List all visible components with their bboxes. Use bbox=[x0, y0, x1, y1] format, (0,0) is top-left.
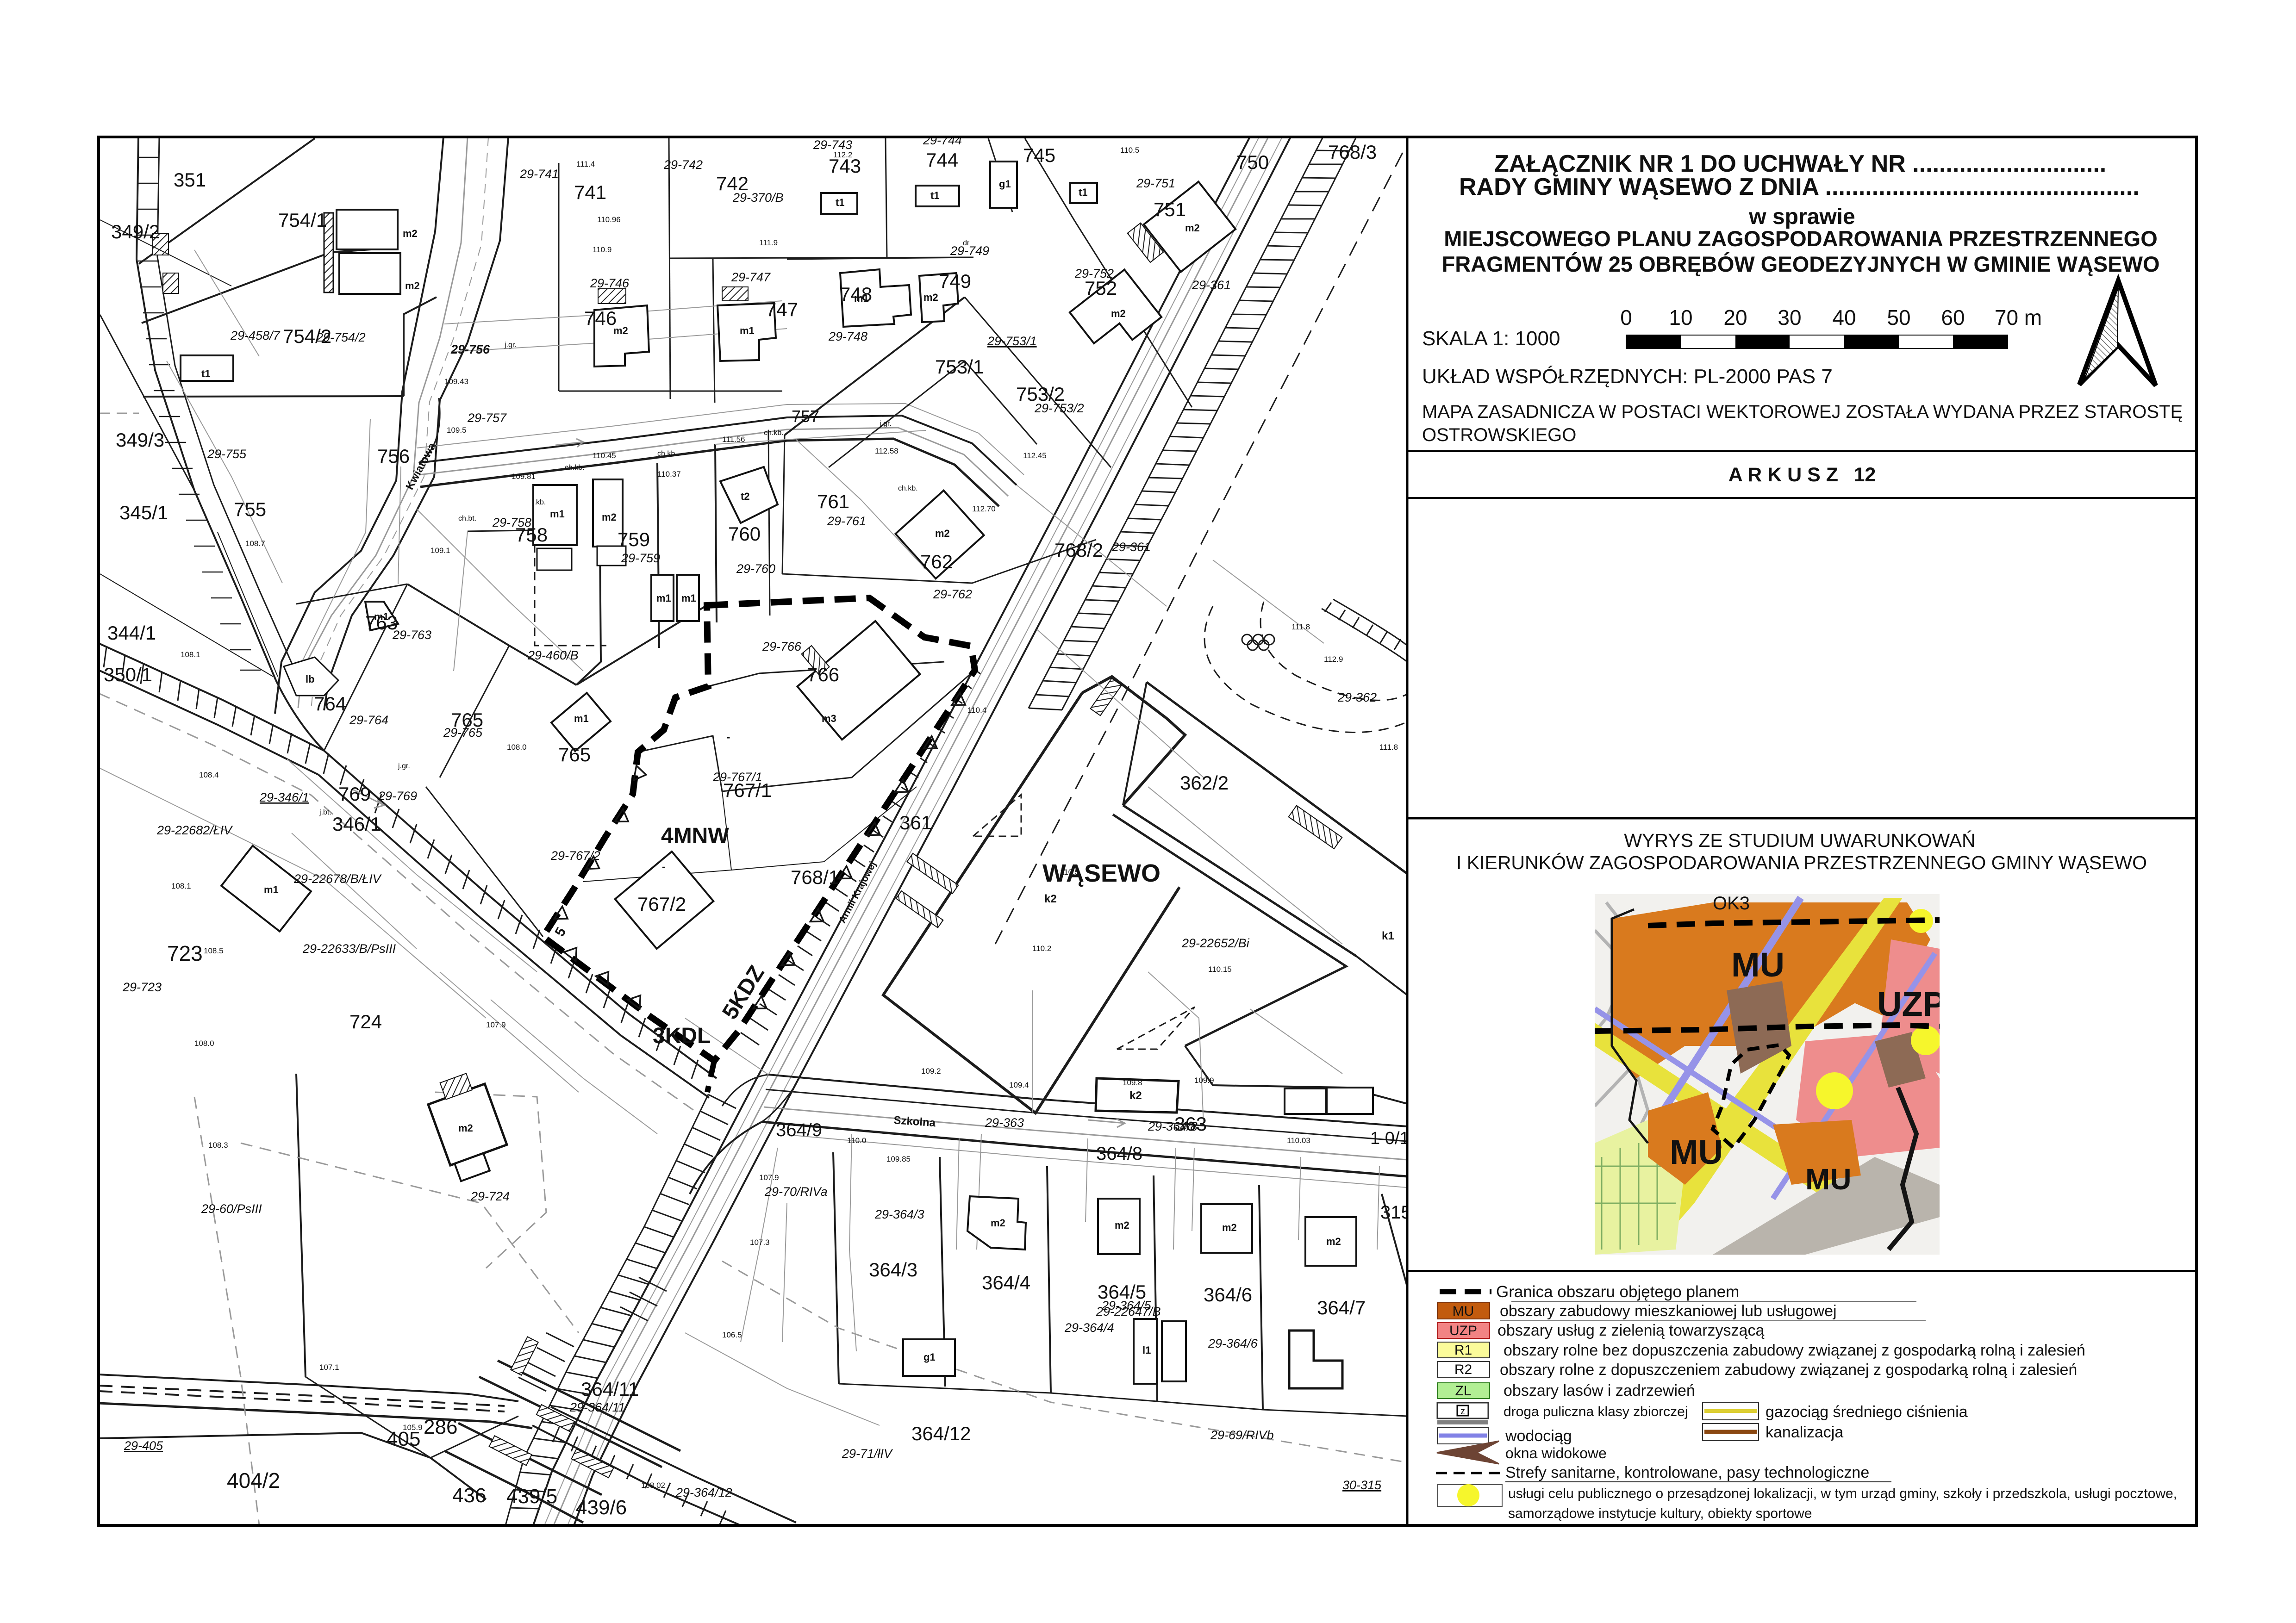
svg-text:747: 747 bbox=[766, 298, 798, 320]
svg-text:m1: m1 bbox=[740, 325, 755, 336]
svg-text:107.3: 107.3 bbox=[750, 1238, 770, 1247]
svg-text:346/1: 346/1 bbox=[332, 813, 381, 835]
svg-text:ch.kb.: ch.kb. bbox=[657, 450, 677, 458]
svg-text:762: 762 bbox=[920, 551, 953, 572]
svg-text:767/2: 767/2 bbox=[637, 893, 686, 915]
svg-text:364/6: 364/6 bbox=[1204, 1284, 1252, 1306]
svg-text:29-761: 29-761 bbox=[827, 514, 866, 528]
svg-text:759: 759 bbox=[618, 529, 650, 550]
svg-text:m2: m2 bbox=[991, 1217, 1005, 1229]
svg-text:757: 757 bbox=[792, 407, 819, 426]
svg-text:usługi celu publicznego o prze: usługi celu publicznego o przesądzonej l… bbox=[1508, 1486, 2177, 1501]
svg-text:ZL: ZL bbox=[1455, 1383, 1471, 1399]
svg-text:29-767/2: 29-767/2 bbox=[550, 849, 600, 863]
svg-text:723: 723 bbox=[167, 941, 203, 965]
svg-text:29-759: 29-759 bbox=[621, 551, 660, 565]
svg-text:109.81: 109.81 bbox=[512, 472, 536, 481]
svg-text:110.96: 110.96 bbox=[597, 215, 621, 224]
svg-text:769: 769 bbox=[338, 783, 371, 805]
svg-text:29-749: 29-749 bbox=[950, 244, 989, 258]
svg-text:29-361: 29-361 bbox=[1111, 540, 1151, 554]
svg-text:29-69/RIVb: 29-69/RIVb bbox=[1210, 1428, 1274, 1442]
svg-text:OSTROWSKIEGO: OSTROWSKIEGO bbox=[1422, 425, 1576, 445]
svg-text:29-361: 29-361 bbox=[1192, 278, 1231, 292]
svg-text:111.9: 111.9 bbox=[759, 238, 778, 247]
svg-text:109.9: 109.9 bbox=[1194, 1076, 1214, 1085]
svg-text:751: 751 bbox=[1154, 199, 1186, 220]
svg-text:111.56: 111.56 bbox=[722, 435, 745, 444]
svg-text:768/1: 768/1 bbox=[791, 866, 839, 888]
svg-text:108.02: 108.02 bbox=[641, 1481, 665, 1490]
svg-text:3KDL: 3KDL bbox=[653, 1024, 711, 1048]
svg-text:okna widokowe: okna widokowe bbox=[1505, 1445, 1607, 1461]
svg-text:m2: m2 bbox=[1111, 308, 1126, 319]
svg-text:g1: g1 bbox=[923, 1351, 936, 1363]
svg-text:29-362: 29-362 bbox=[1337, 690, 1377, 704]
svg-text:70 m: 70 m bbox=[1995, 305, 2042, 330]
svg-text:UZP: UZP bbox=[1449, 1323, 1477, 1338]
svg-text:109.1: 109.1 bbox=[430, 546, 450, 555]
svg-text:29-751: 29-751 bbox=[1136, 176, 1175, 190]
svg-text:29-765: 29-765 bbox=[443, 726, 483, 740]
svg-text:I KIERUNKÓW ZAGOSPODAROWANIA P: I KIERUNKÓW ZAGOSPODAROWANIA PRZESTRZENN… bbox=[1456, 852, 2147, 873]
svg-text:349/2: 349/2 bbox=[111, 221, 160, 243]
svg-text:0: 0 bbox=[1620, 305, 1632, 330]
svg-text:112.70: 112.70 bbox=[972, 504, 996, 513]
svg-text:m1: m1 bbox=[550, 508, 565, 520]
svg-text:752: 752 bbox=[1085, 277, 1117, 299]
svg-text:110.37: 110.37 bbox=[657, 470, 681, 479]
svg-text:29-743: 29-743 bbox=[813, 138, 852, 152]
svg-text:OK3: OK3 bbox=[1713, 893, 1750, 914]
svg-text:766: 766 bbox=[807, 664, 839, 685]
svg-text:108.4: 108.4 bbox=[199, 771, 219, 779]
svg-text:108.5: 108.5 bbox=[204, 946, 224, 955]
svg-text:k2: k2 bbox=[1129, 1089, 1142, 1102]
svg-text:m2: m2 bbox=[923, 292, 938, 303]
svg-text:wodociąg: wodociąg bbox=[1505, 1427, 1572, 1445]
svg-text:29-757: 29-757 bbox=[467, 411, 507, 425]
svg-text:29-763: 29-763 bbox=[392, 628, 431, 642]
svg-text:obszary usług z zielenią towar: obszary usług z zielenią towarzyszącą bbox=[1497, 1322, 1764, 1339]
svg-text:A R K U S Z 12: A R K U S Z 12 bbox=[1728, 464, 1876, 486]
svg-text:m1: m1 bbox=[574, 713, 589, 724]
svg-text:m3: m3 bbox=[822, 713, 836, 724]
svg-text:110.5: 110.5 bbox=[1060, 868, 1079, 877]
svg-text:109.4: 109.4 bbox=[1009, 1081, 1029, 1089]
svg-text:MU: MU bbox=[1731, 945, 1784, 984]
svg-text:k1: k1 bbox=[1382, 930, 1394, 942]
svg-text:50: 50 bbox=[1887, 305, 1910, 330]
svg-text:w sprawie: w sprawie bbox=[1748, 205, 1855, 229]
svg-text:29-760: 29-760 bbox=[736, 562, 775, 576]
svg-text:m2: m2 bbox=[403, 228, 418, 239]
svg-text:112.45: 112.45 bbox=[1023, 451, 1047, 460]
svg-text:30-315: 30-315 bbox=[1342, 1478, 1382, 1492]
svg-text:UKŁAD WSPÓŁRZĘDNYCH: PL-2000 P: UKŁAD WSPÓŁRZĘDNYCH: PL-2000 PAS 7 bbox=[1422, 365, 1833, 388]
svg-text:j.kb.: j.kb. bbox=[532, 498, 546, 506]
svg-text:l1: l1 bbox=[1142, 1344, 1151, 1356]
svg-text:286: 286 bbox=[424, 1416, 457, 1438]
svg-text:29-724: 29-724 bbox=[470, 1189, 510, 1203]
svg-text:t1: t1 bbox=[930, 190, 940, 201]
svg-text:29-764: 29-764 bbox=[349, 713, 388, 727]
svg-text:j.gr.: j.gr. bbox=[879, 420, 892, 428]
svg-text:744: 744 bbox=[926, 149, 958, 171]
svg-text:109.5: 109.5 bbox=[447, 426, 467, 435]
svg-text:m2: m2 bbox=[1185, 222, 1200, 234]
svg-text:ch.kb.: ch.kb. bbox=[565, 464, 585, 472]
svg-text:m2: m2 bbox=[458, 1122, 473, 1134]
svg-text:ch.kb.: ch.kb. bbox=[898, 485, 918, 492]
svg-text:764: 764 bbox=[314, 693, 346, 715]
svg-text:351: 351 bbox=[174, 169, 206, 191]
svg-text:m1: m1 bbox=[681, 592, 696, 604]
svg-text:-: - bbox=[727, 731, 730, 743]
svg-text:obszary rolne z dopuszczeniem: obszary rolne z dopuszczeniem zabudowy z… bbox=[1500, 1361, 2077, 1379]
svg-text:364/8: 364/8 bbox=[1096, 1144, 1142, 1164]
svg-text:29-60/PsIII: 29-60/PsIII bbox=[201, 1202, 262, 1216]
svg-text:-: - bbox=[662, 861, 665, 872]
svg-text:29-756: 29-756 bbox=[450, 342, 490, 356]
svg-text:j.bt.: j.bt. bbox=[319, 808, 331, 816]
svg-text:110.5: 110.5 bbox=[1120, 146, 1139, 155]
svg-text:MIEJSCOWEGO PLANU ZAGOSPODAROW: MIEJSCOWEGO PLANU ZAGOSPODAROWANIA PRZES… bbox=[1444, 226, 2158, 251]
svg-text:29-753/1: 29-753/1 bbox=[987, 334, 1037, 348]
svg-text:768/2: 768/2 bbox=[1054, 539, 1103, 561]
svg-text:t2: t2 bbox=[741, 491, 750, 502]
svg-text:ch.kb.: ch.kb. bbox=[764, 429, 784, 437]
svg-text:111.4: 111.4 bbox=[576, 160, 595, 168]
svg-text:109.2: 109.2 bbox=[921, 1067, 941, 1076]
svg-text:20: 20 bbox=[1723, 305, 1747, 330]
svg-text:404/2: 404/2 bbox=[227, 1468, 280, 1492]
svg-text:dr: dr bbox=[963, 239, 970, 247]
svg-text:364/4: 364/4 bbox=[982, 1272, 1030, 1293]
svg-text:768/3: 768/3 bbox=[1328, 141, 1377, 163]
svg-text:29-22682/ŁIV: 29-22682/ŁIV bbox=[156, 823, 233, 837]
svg-text:112.58: 112.58 bbox=[875, 447, 898, 455]
svg-text:10: 10 bbox=[1669, 305, 1692, 330]
svg-text:29-70/RIVa: 29-70/RIVa bbox=[764, 1185, 828, 1199]
svg-text:108.3: 108.3 bbox=[208, 1141, 228, 1150]
svg-text:112.2: 112.2 bbox=[833, 150, 852, 159]
svg-text:z: z bbox=[1460, 1406, 1465, 1417]
svg-text:MAPA ZASADNICZA W POSTACI WEKT: MAPA ZASADNICZA W POSTACI WEKTOROWEJ ZOS… bbox=[1422, 402, 2183, 422]
svg-text:t1: t1 bbox=[836, 197, 845, 208]
svg-text:761: 761 bbox=[817, 491, 849, 512]
svg-text:1 0/1: 1 0/1 bbox=[1370, 1129, 1410, 1148]
svg-text:m2: m2 bbox=[1222, 1222, 1237, 1233]
svg-text:60: 60 bbox=[1941, 305, 1965, 330]
svg-text:108.0: 108.0 bbox=[194, 1039, 214, 1048]
svg-text:108.1: 108.1 bbox=[181, 650, 200, 659]
svg-text:29-458/7: 29-458/7 bbox=[230, 329, 281, 342]
svg-text:29-364/11: 29-364/11 bbox=[569, 1400, 625, 1414]
svg-text:108.7: 108.7 bbox=[245, 539, 265, 548]
svg-text:361: 361 bbox=[899, 812, 932, 833]
svg-text:110.9: 110.9 bbox=[593, 245, 611, 254]
svg-text:obszary zabudowy mieszkaniowej: obszary zabudowy mieszkaniowej lub usług… bbox=[1500, 1302, 1837, 1320]
svg-text:SKALA 1: 1000: SKALA 1: 1000 bbox=[1422, 327, 1560, 350]
svg-text:745: 745 bbox=[1023, 144, 1055, 166]
svg-text:439/5: 439/5 bbox=[506, 1485, 557, 1508]
svg-text:29-363: 29-363 bbox=[985, 1116, 1024, 1130]
svg-text:29-752: 29-752 bbox=[1074, 267, 1114, 280]
svg-text:29-748: 29-748 bbox=[828, 330, 867, 343]
svg-text:349/3: 349/3 bbox=[116, 429, 164, 451]
svg-text:29-769: 29-769 bbox=[378, 789, 417, 803]
svg-text:109.43: 109.43 bbox=[444, 377, 468, 386]
svg-text:29-753/2: 29-753/2 bbox=[1034, 401, 1084, 415]
svg-text:j.gr.: j.gr. bbox=[398, 762, 410, 770]
svg-text:107.1: 107.1 bbox=[319, 1363, 339, 1372]
svg-text:ch.bt.: ch.bt. bbox=[458, 515, 476, 522]
svg-text:j.gr.: j.gr. bbox=[504, 341, 517, 349]
svg-text:29-71/łIV: 29-71/łIV bbox=[842, 1447, 893, 1461]
svg-text:obszary rolne bez dopuszczenia: obszary rolne bez dopuszczenia zabudowy … bbox=[1504, 1342, 2085, 1359]
svg-text:344/1: 344/1 bbox=[107, 622, 156, 644]
svg-text:110.45: 110.45 bbox=[593, 451, 616, 460]
svg-text:109.85: 109.85 bbox=[886, 1155, 911, 1163]
svg-text:Granica obszaru objętego plane: Granica obszaru objętego planem bbox=[1496, 1283, 1739, 1301]
svg-text:350/1: 350/1 bbox=[104, 664, 152, 685]
svg-text:WYRYS ZE STUDIUM UWARUNKOWAŃ: WYRYS ZE STUDIUM UWARUNKOWAŃ bbox=[1624, 830, 1975, 851]
svg-text:MU: MU bbox=[1805, 1163, 1852, 1196]
svg-text:110.03: 110.03 bbox=[1287, 1136, 1310, 1145]
svg-text:m2: m2 bbox=[613, 325, 628, 336]
svg-text:111.8: 111.8 bbox=[1291, 622, 1310, 631]
svg-text:29-370/B: 29-370/B bbox=[732, 191, 784, 205]
svg-text:obszary lasów i zadrzewień: obszary lasów i zadrzewień bbox=[1504, 1382, 1695, 1399]
svg-text:110.2: 110.2 bbox=[1032, 944, 1051, 953]
svg-text:750: 750 bbox=[1236, 151, 1269, 173]
svg-text:29-364/8: 29-364/8 bbox=[1148, 1119, 1198, 1133]
svg-text:29-22652/Bi: 29-22652/Bi bbox=[1181, 936, 1250, 950]
svg-text:MU: MU bbox=[1670, 1133, 1723, 1171]
svg-text:29-22633/B/PsIII: 29-22633/B/PsIII bbox=[302, 942, 396, 956]
svg-text:samorządowe instytucje kultury: samorządowe instytucje kultury, obiekty … bbox=[1508, 1506, 1812, 1521]
svg-text:m2: m2 bbox=[1115, 1219, 1129, 1231]
svg-text:112.9: 112.9 bbox=[1324, 655, 1343, 664]
svg-text:760: 760 bbox=[728, 523, 761, 545]
svg-text:109.8: 109.8 bbox=[1123, 1078, 1142, 1087]
svg-text:29-766: 29-766 bbox=[762, 640, 802, 653]
svg-text:754/1: 754/1 bbox=[278, 209, 327, 231]
svg-text:lb: lb bbox=[306, 673, 315, 685]
svg-text:364/7: 364/7 bbox=[1317, 1297, 1366, 1318]
svg-text:m2: m2 bbox=[1326, 1236, 1341, 1247]
svg-text:29-346/1: 29-346/1 bbox=[259, 790, 309, 804]
svg-text:UZP: UZP bbox=[1877, 985, 1946, 1023]
svg-text:R1: R1 bbox=[1454, 1343, 1472, 1358]
svg-text:t1: t1 bbox=[1079, 187, 1088, 198]
svg-text:756: 756 bbox=[377, 445, 410, 467]
svg-text:29-364/3: 29-364/3 bbox=[874, 1207, 924, 1221]
svg-text:kanalizacja: kanalizacja bbox=[1766, 1424, 1843, 1441]
svg-text:4MNW: 4MNW bbox=[661, 824, 729, 848]
svg-text:gazociąg średniego ciśnienia: gazociąg średniego ciśnienia bbox=[1766, 1403, 1968, 1421]
svg-text:724: 724 bbox=[349, 1011, 382, 1032]
svg-text:108.1: 108.1 bbox=[171, 882, 191, 890]
svg-text:29-405: 29-405 bbox=[124, 1439, 163, 1453]
svg-text:755: 755 bbox=[234, 498, 266, 520]
svg-text:749: 749 bbox=[939, 270, 971, 292]
svg-text:m2: m2 bbox=[935, 528, 950, 539]
svg-text:29-741: 29-741 bbox=[519, 167, 559, 181]
svg-text:29-460/B: 29-460/B bbox=[527, 648, 579, 662]
svg-text:k2: k2 bbox=[1044, 893, 1057, 905]
svg-text:29-754/2: 29-754/2 bbox=[316, 330, 366, 344]
svg-text:droga puliczna klasy zbiorczej: droga puliczna klasy zbiorczej bbox=[1504, 1404, 1688, 1419]
svg-text:110.4: 110.4 bbox=[967, 706, 986, 715]
svg-text:40: 40 bbox=[1832, 305, 1856, 330]
svg-text:746: 746 bbox=[584, 307, 617, 329]
svg-text:364/11: 364/11 bbox=[581, 1378, 639, 1400]
svg-text:g1: g1 bbox=[999, 178, 1011, 190]
svg-text:364/9: 364/9 bbox=[776, 1120, 822, 1140]
svg-text:FRAGMENTÓW 25 OBRĘBÓW GEODEZYJ: FRAGMENTÓW 25 OBRĘBÓW GEODEZYJNYCH W GMI… bbox=[1441, 252, 2159, 276]
svg-text:110.0: 110.0 bbox=[847, 1136, 866, 1145]
svg-text:29-762: 29-762 bbox=[933, 587, 972, 601]
svg-text:364/12: 364/12 bbox=[911, 1423, 971, 1444]
svg-text:107.9: 107.9 bbox=[759, 1173, 779, 1182]
svg-text:29-742: 29-742 bbox=[663, 158, 703, 172]
svg-text:108.0: 108.0 bbox=[507, 743, 527, 752]
svg-text:Strefy sanitarne, kontrolowane: Strefy sanitarne, kontrolowane, pasy tec… bbox=[1505, 1464, 1869, 1481]
svg-text:29-22647/B: 29-22647/B bbox=[1096, 1305, 1161, 1318]
svg-text:m1: m1 bbox=[656, 592, 671, 604]
svg-text:362/2: 362/2 bbox=[1180, 772, 1229, 794]
svg-text:345/1: 345/1 bbox=[119, 502, 168, 523]
svg-text:MU: MU bbox=[1453, 1304, 1474, 1319]
svg-text:m1: m1 bbox=[264, 884, 279, 895]
svg-text:RADY GMINY WĄSEWO Z DNIA .....: RADY GMINY WĄSEWO Z DNIA ...............… bbox=[1459, 174, 2140, 200]
svg-text:29-755: 29-755 bbox=[207, 447, 247, 461]
svg-text:30: 30 bbox=[1778, 305, 1801, 330]
svg-text:m1: m1 bbox=[854, 292, 869, 304]
svg-text:364/3: 364/3 bbox=[869, 1259, 917, 1281]
svg-text:741: 741 bbox=[574, 181, 606, 203]
svg-text:29-767/1: 29-767/1 bbox=[712, 770, 762, 784]
svg-text:110.15: 110.15 bbox=[1208, 965, 1232, 974]
svg-text:29-746: 29-746 bbox=[590, 276, 630, 290]
svg-text:765: 765 bbox=[558, 744, 591, 765]
svg-text:t1: t1 bbox=[201, 368, 211, 379]
svg-text:105.9: 105.9 bbox=[403, 1423, 423, 1432]
svg-text:29-364/4: 29-364/4 bbox=[1064, 1321, 1114, 1335]
svg-text:29-364/6: 29-364/6 bbox=[1208, 1337, 1258, 1350]
svg-text:29-364/12: 29-364/12 bbox=[675, 1486, 732, 1499]
svg-text:29-723: 29-723 bbox=[122, 980, 162, 994]
svg-text:m2: m2 bbox=[602, 511, 617, 523]
svg-text:106.5: 106.5 bbox=[722, 1331, 742, 1339]
svg-text:107.9: 107.9 bbox=[486, 1020, 506, 1029]
svg-text:111.8: 111.8 bbox=[1379, 743, 1398, 752]
svg-text:m1: m1 bbox=[374, 611, 389, 622]
svg-text:753/1: 753/1 bbox=[935, 356, 984, 378]
svg-text:R2: R2 bbox=[1454, 1362, 1472, 1377]
svg-text:29-758: 29-758 bbox=[492, 516, 531, 529]
svg-text:m2: m2 bbox=[405, 280, 420, 292]
svg-text:29-747: 29-747 bbox=[731, 270, 771, 284]
svg-text:436: 436 bbox=[452, 1484, 486, 1507]
svg-text:439/6: 439/6 bbox=[576, 1496, 627, 1519]
svg-text:29-22678/B/ŁIV: 29-22678/B/ŁIV bbox=[293, 872, 382, 886]
